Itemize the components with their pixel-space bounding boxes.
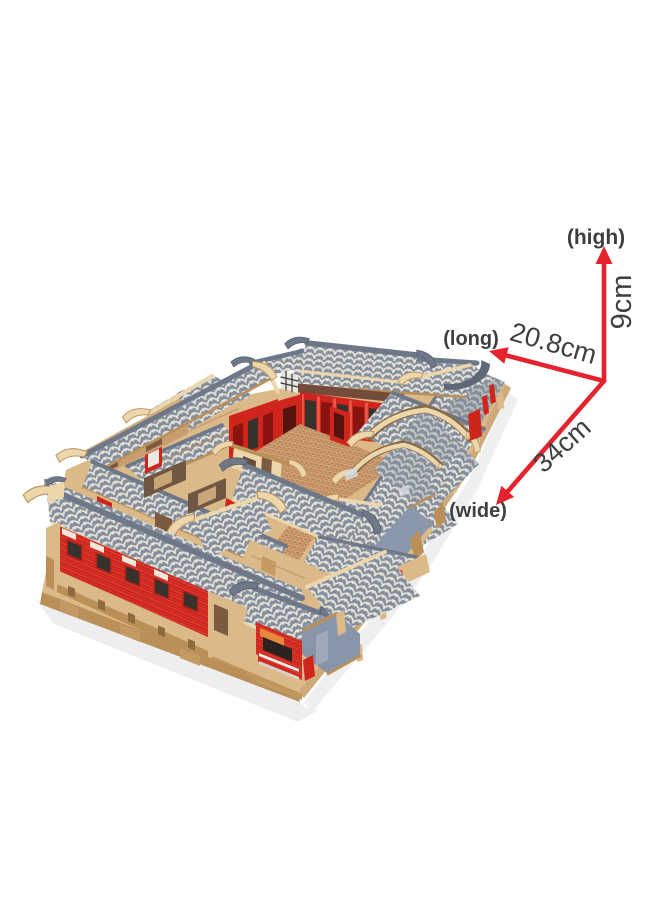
svg-text:9cm: 9cm (606, 275, 638, 330)
svg-text:(wide): (wide) (449, 500, 507, 522)
svg-text:20.8cm: 20.8cm (507, 317, 600, 370)
svg-text:34cm: 34cm (527, 412, 596, 478)
svg-text:(long): (long) (443, 328, 499, 350)
svg-text:(high): (high) (567, 226, 625, 249)
